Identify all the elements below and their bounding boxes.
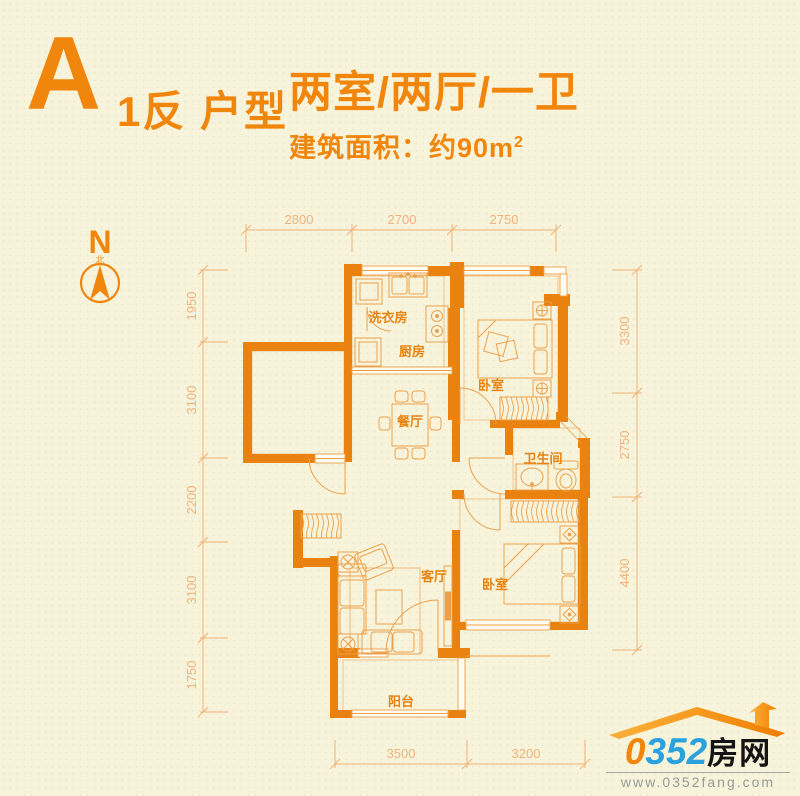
- logo-divider: [606, 772, 790, 773]
- label-bath: 卫生间: [523, 451, 562, 466]
- window-top-corner: [544, 267, 567, 296]
- floorplan-drawing: N 北 2800 2700 2750 1950 3100 2200: [0, 0, 800, 796]
- compass-needle-icon: [90, 265, 110, 300]
- washing-machine: [356, 279, 382, 304]
- wardrobe-bedroom2: [511, 501, 579, 522]
- nightstand-diamond: [560, 526, 579, 543]
- balcony-door: [386, 600, 438, 652]
- cabinet: [355, 338, 381, 366]
- label-bedroom2: 卧室: [482, 577, 508, 592]
- floorplan-page: A 1反 户型 两室/两厅/一卫 建筑面积：约90m2 N 北 2800 270…: [0, 0, 800, 796]
- label-balcony: 阳台: [388, 694, 414, 709]
- label-kitchen: 厨房: [399, 344, 425, 359]
- svg-text:3100: 3100: [184, 576, 199, 605]
- svg-text:3500: 3500: [387, 746, 416, 761]
- kitchen-slider: [352, 367, 452, 374]
- svg-text:1950: 1950: [184, 292, 199, 321]
- window-top-2: [464, 266, 530, 275]
- svg-text:3100: 3100: [184, 386, 199, 415]
- svg-text:2750: 2750: [617, 431, 632, 460]
- bed-bedroom1: [478, 320, 552, 378]
- window-top-1: [362, 266, 428, 275]
- logo-cn: 房网: [707, 736, 771, 771]
- svg-text:2700: 2700: [388, 212, 417, 227]
- wardrobe-bedroom1: [500, 397, 548, 420]
- label-bedroom1: 卧室: [478, 378, 504, 393]
- door-opening-room: [315, 454, 345, 463]
- rug: [350, 568, 420, 654]
- svg-text:3300: 3300: [617, 317, 632, 346]
- dimension-left: 1950 3100 2200 3100 1750: [184, 265, 228, 717]
- dimension-bottom: 3500 3200: [330, 740, 590, 769]
- svg-text:2750: 2750: [490, 212, 519, 227]
- label-living: 客厅: [421, 569, 447, 584]
- nightstand-diamond: [560, 606, 579, 623]
- nightstand-lamp: [533, 380, 551, 397]
- svg-text:2200: 2200: [184, 486, 199, 515]
- bedroom1-door: [460, 388, 496, 424]
- bath-sink: [516, 464, 548, 490]
- dimension-right: 3300 2750 4400: [612, 265, 642, 655]
- shoe-cabinet: [301, 514, 341, 538]
- logo-wordmark: 0352房网: [604, 733, 792, 770]
- label-dining: 餐厅: [396, 414, 423, 429]
- logo-digits: 352: [645, 731, 707, 772]
- window-bedroom2: [466, 620, 550, 656]
- stove: [426, 306, 448, 342]
- svg-text:2800: 2800: [285, 212, 314, 227]
- bed-bedroom2: [504, 544, 580, 604]
- svg-text:1750: 1750: [184, 661, 199, 690]
- north-compass: N 北: [81, 224, 119, 302]
- svg-text:4400: 4400: [617, 559, 632, 588]
- svg-text:3200: 3200: [512, 746, 541, 761]
- site-logo: 0352房网 www.0352fang.com: [604, 701, 792, 790]
- logo-zero: 0: [625, 731, 646, 772]
- logo-url: www.0352fang.com: [604, 774, 792, 790]
- label-laundry: 洗衣房: [368, 310, 407, 325]
- bathroom-door: [469, 458, 505, 494]
- dimension-top: 2800 2700 2750: [241, 212, 561, 252]
- armchair: [354, 543, 394, 581]
